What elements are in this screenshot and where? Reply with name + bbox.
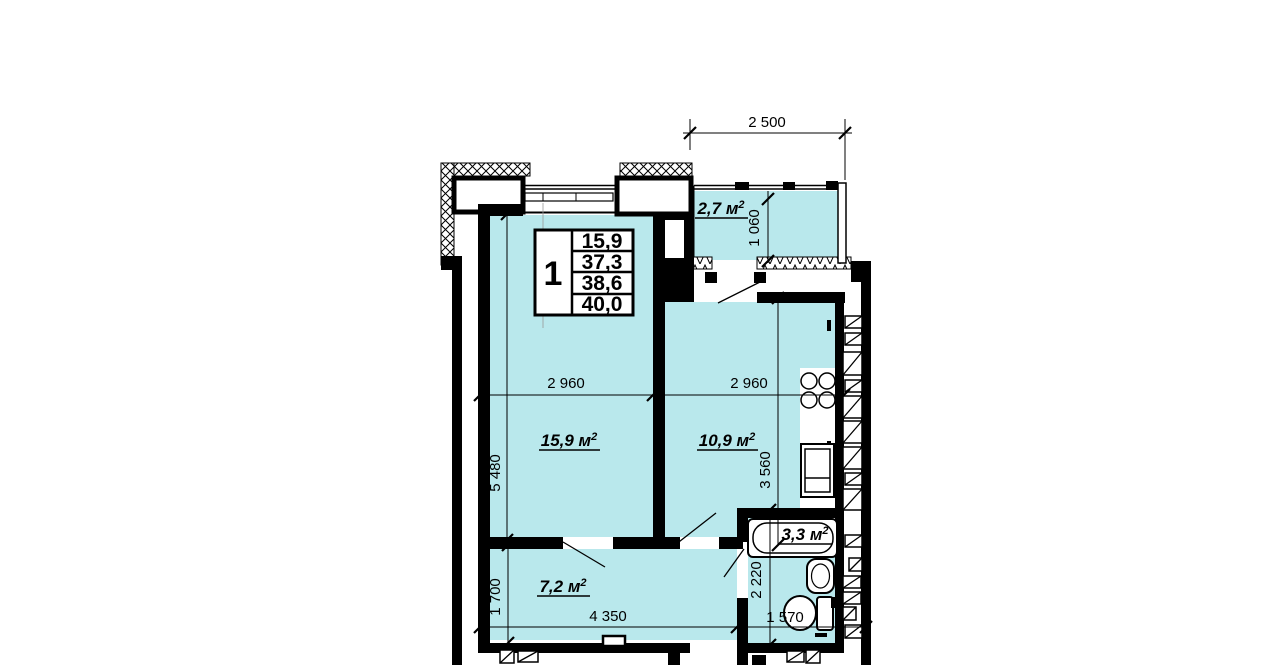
label-kitchen: 10,9 м2 [699, 431, 756, 450]
wall-bathroom-left-upper [737, 508, 748, 542]
wall-kitchen-top [757, 292, 845, 303]
room-hall [490, 549, 737, 640]
balcony-mullion [826, 181, 838, 190]
floor-plan-page: 2 500 1 060 2 960 2 960 5 480 [0, 0, 1280, 665]
balcony-right-frame [838, 183, 846, 263]
drain-mark [815, 633, 827, 637]
living-window-sill [525, 193, 613, 201]
wall-living-kitchen [653, 212, 665, 545]
washbasin [807, 559, 834, 593]
dim-text-living-depth: 5 480 [487, 454, 504, 492]
wall-top-interior-left [478, 204, 523, 216]
table-value-row4: 40,0 [582, 293, 623, 316]
wall-block-top-right [617, 178, 691, 214]
dim-text-hall-width: 4 350 [589, 608, 627, 625]
hatch-top-right [620, 163, 692, 176]
dim-text-hall-depth: 1 700 [487, 578, 504, 616]
floor-plan-drawing: 2 500 1 060 2 960 2 960 5 480 [0, 0, 1280, 665]
faucet-mark [827, 320, 831, 331]
wall-outer-left [452, 258, 462, 665]
dim-text-balcony-width: 2 500 [748, 114, 786, 131]
dim-text-bathroom-depth: 2 220 [748, 561, 765, 599]
threshold-block [752, 655, 766, 665]
label-hall: 7,2 м2 [539, 577, 586, 596]
wall-bathroom-top [737, 508, 844, 518]
dim-balcony-width: 2 500 [683, 114, 852, 180]
wall-corner-core [664, 220, 684, 258]
label-living: 15,9 м2 [541, 431, 598, 450]
dim-text-bathroom-width: 1 570 [766, 609, 804, 626]
dim-text-kitchen-depth: 3 560 [757, 451, 774, 489]
kitchen-sink-unit [801, 444, 834, 497]
dim-text-living-width: 2 960 [547, 375, 585, 392]
dim-text-balcony-depth: 1 060 [746, 209, 763, 247]
table-value-row2: 37,3 [582, 251, 623, 274]
flat-number: 1 [544, 255, 563, 293]
wall-bathroom-left-lower [737, 598, 748, 665]
wall-outer-left-step [441, 256, 462, 270]
wall-hall-top-mid [613, 537, 680, 549]
wall-stub-bottom [668, 653, 680, 665]
wall-hall-top-left [478, 537, 563, 549]
info-table: 1 15,9 37,3 38,6 40,0 [535, 230, 633, 316]
balcony-mullion [735, 182, 749, 190]
table-value-row3: 38,6 [582, 272, 623, 295]
door-swing-balcony [718, 282, 760, 303]
label-balcony: 2,7 м2 [696, 199, 744, 218]
balcony-mullion [783, 182, 795, 190]
dim-text-kitchen-width: 2 960 [730, 375, 768, 392]
door-stop-balcony-right [754, 272, 766, 283]
table-value-row1: 15,9 [582, 230, 623, 253]
entrance-threshold-notch [603, 636, 625, 646]
label-bathroom: 3,3 м2 [781, 525, 828, 544]
door-stop-balcony-left [705, 272, 717, 283]
water-supply-mark [831, 597, 835, 608]
